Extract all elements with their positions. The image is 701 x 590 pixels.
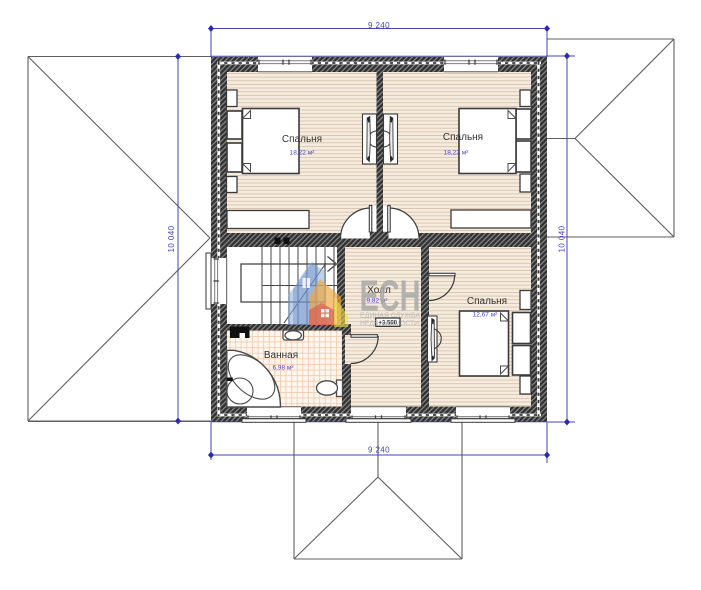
svg-text:10 040: 10 040	[557, 225, 566, 252]
svg-text:12,67 м²: 12,67 м²	[473, 312, 499, 319]
svg-text:НЕДВИЖИМОСТИ: НЕДВИЖИМОСТИ	[360, 320, 419, 327]
svg-text:ЕДИНАЯ СЛУЖБА: ЕДИНАЯ СЛУЖБА	[360, 313, 420, 320]
svg-text:Спальня: Спальня	[467, 296, 507, 307]
svg-text:9 240: 9 240	[368, 21, 390, 30]
svg-text:Ванная: Ванная	[264, 350, 298, 361]
svg-text:18,22 м²: 18,22 м²	[290, 150, 316, 157]
svg-text:18,22 м²: 18,22 м²	[444, 150, 470, 157]
svg-text:9 240: 9 240	[368, 446, 390, 455]
svg-text:Спальня: Спальня	[282, 134, 322, 145]
svg-text:10 040: 10 040	[167, 225, 176, 252]
svg-text:6,98 м²: 6,98 м²	[272, 365, 294, 372]
svg-text:Спальня: Спальня	[443, 132, 483, 143]
